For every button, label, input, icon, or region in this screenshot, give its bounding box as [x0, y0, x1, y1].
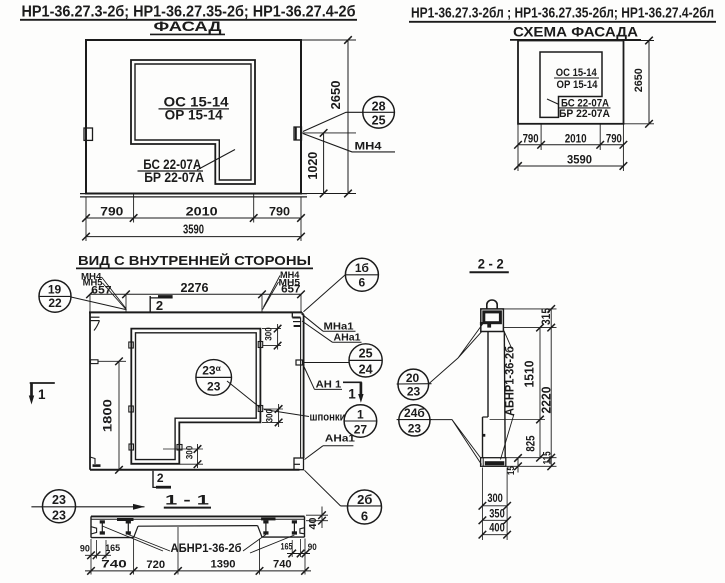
- svg-text:1: 1: [348, 386, 356, 401]
- svg-text:23: 23: [52, 508, 66, 522]
- svg-text:6: 6: [361, 509, 368, 524]
- svg-text:15: 15: [506, 465, 517, 475]
- svg-text:790: 790: [606, 134, 622, 146]
- svg-text:400: 400: [489, 522, 505, 534]
- svg-text:АБНР1-36-2б: АБНР1-36-2б: [171, 541, 242, 555]
- svg-text:115: 115: [541, 451, 553, 464]
- svg-text:23: 23: [207, 379, 221, 393]
- svg-text:300: 300: [263, 327, 274, 341]
- svg-text:2220: 2220: [540, 386, 554, 413]
- svg-text:3590: 3590: [183, 222, 204, 237]
- svg-text:1б: 1б: [355, 261, 369, 275]
- svg-text:АН 1: АН 1: [316, 378, 342, 390]
- svg-text:720: 720: [146, 559, 165, 571]
- svg-text:24б: 24б: [404, 406, 425, 420]
- svg-text:90: 90: [308, 542, 317, 553]
- svg-text:1 - 1: 1 - 1: [165, 492, 209, 508]
- svg-text:1: 1: [357, 407, 364, 421]
- svg-text:28: 28: [372, 99, 386, 113]
- svg-text:40: 40: [308, 517, 319, 529]
- svg-text:300: 300: [184, 446, 195, 460]
- svg-text:24: 24: [359, 362, 373, 376]
- svg-text:БР 22-07А: БР 22-07А: [144, 170, 204, 185]
- svg-text:ОР 15-14: ОР 15-14: [165, 108, 223, 123]
- svg-text:2 - 2: 2 - 2: [478, 255, 504, 271]
- svg-text:1390: 1390: [211, 558, 236, 570]
- svg-text:27: 27: [354, 423, 368, 437]
- svg-text:СХЕМА ФАСАДА: СХЕМА ФАСАДА: [513, 23, 638, 39]
- svg-text:25: 25: [372, 114, 386, 128]
- svg-text:ВИД С ВНУТРЕННЕЙ СТОРОНЫ: ВИД С ВНУТРЕННЕЙ СТОРОНЫ: [78, 253, 311, 268]
- svg-text:23: 23: [408, 422, 422, 436]
- svg-text:23: 23: [407, 385, 421, 399]
- svg-text:1020: 1020: [306, 152, 320, 180]
- svg-text:2б: 2б: [357, 492, 372, 507]
- svg-text:2650: 2650: [633, 68, 645, 92]
- svg-text:МН5: МН5: [279, 278, 301, 289]
- svg-text:АНа1: АНа1: [334, 331, 361, 343]
- svg-text:23: 23: [52, 493, 66, 507]
- svg-text:790: 790: [100, 205, 123, 219]
- svg-text:6: 6: [359, 275, 366, 289]
- svg-text:22: 22: [48, 296, 62, 310]
- svg-text:2010: 2010: [186, 205, 218, 219]
- svg-text:НР1-36.27.3-2бл ; НР1-36.27.35: НР1-36.27.3-2бл ; НР1-36.27.35-2бл; НР1-…: [411, 5, 714, 21]
- svg-text:825: 825: [526, 435, 538, 452]
- svg-text:165: 165: [105, 543, 121, 554]
- svg-text:2010: 2010: [565, 134, 587, 146]
- svg-text:20: 20: [406, 371, 420, 385]
- svg-text:25: 25: [359, 347, 373, 361]
- svg-text:315: 315: [541, 307, 553, 325]
- svg-text:790: 790: [523, 134, 539, 146]
- svg-text:БР 22-07А: БР 22-07А: [559, 108, 610, 120]
- svg-text:2: 2: [156, 298, 163, 313]
- svg-text:300: 300: [487, 493, 503, 505]
- svg-text:1510: 1510: [522, 360, 536, 387]
- svg-text:ОР 15-14: ОР 15-14: [557, 79, 599, 91]
- svg-text:2650: 2650: [328, 81, 343, 110]
- svg-text:740: 740: [101, 558, 126, 570]
- svg-text:шпонки: шпонки: [310, 411, 346, 423]
- svg-text:АБНР1-36-2б: АБНР1-36-2б: [505, 346, 517, 416]
- svg-text:2: 2: [157, 471, 164, 485]
- svg-text:350: 350: [489, 508, 505, 520]
- svg-text:МН5: МН5: [83, 278, 104, 289]
- svg-text:1: 1: [38, 387, 46, 402]
- svg-text:АНа1: АНа1: [325, 433, 355, 445]
- svg-text:3590: 3590: [567, 155, 592, 167]
- svg-text:1800: 1800: [101, 399, 115, 432]
- svg-text:165: 165: [281, 542, 294, 553]
- svg-text:ФАСАД: ФАСАД: [154, 18, 222, 34]
- svg-text:ОС 15-14: ОС 15-14: [556, 67, 598, 79]
- svg-text:740: 740: [273, 558, 292, 570]
- svg-text:790: 790: [269, 205, 290, 219]
- svg-text:90: 90: [80, 543, 90, 554]
- svg-text:2276: 2276: [181, 280, 209, 295]
- svg-text:МН4: МН4: [355, 140, 383, 152]
- svg-text:19: 19: [48, 283, 62, 297]
